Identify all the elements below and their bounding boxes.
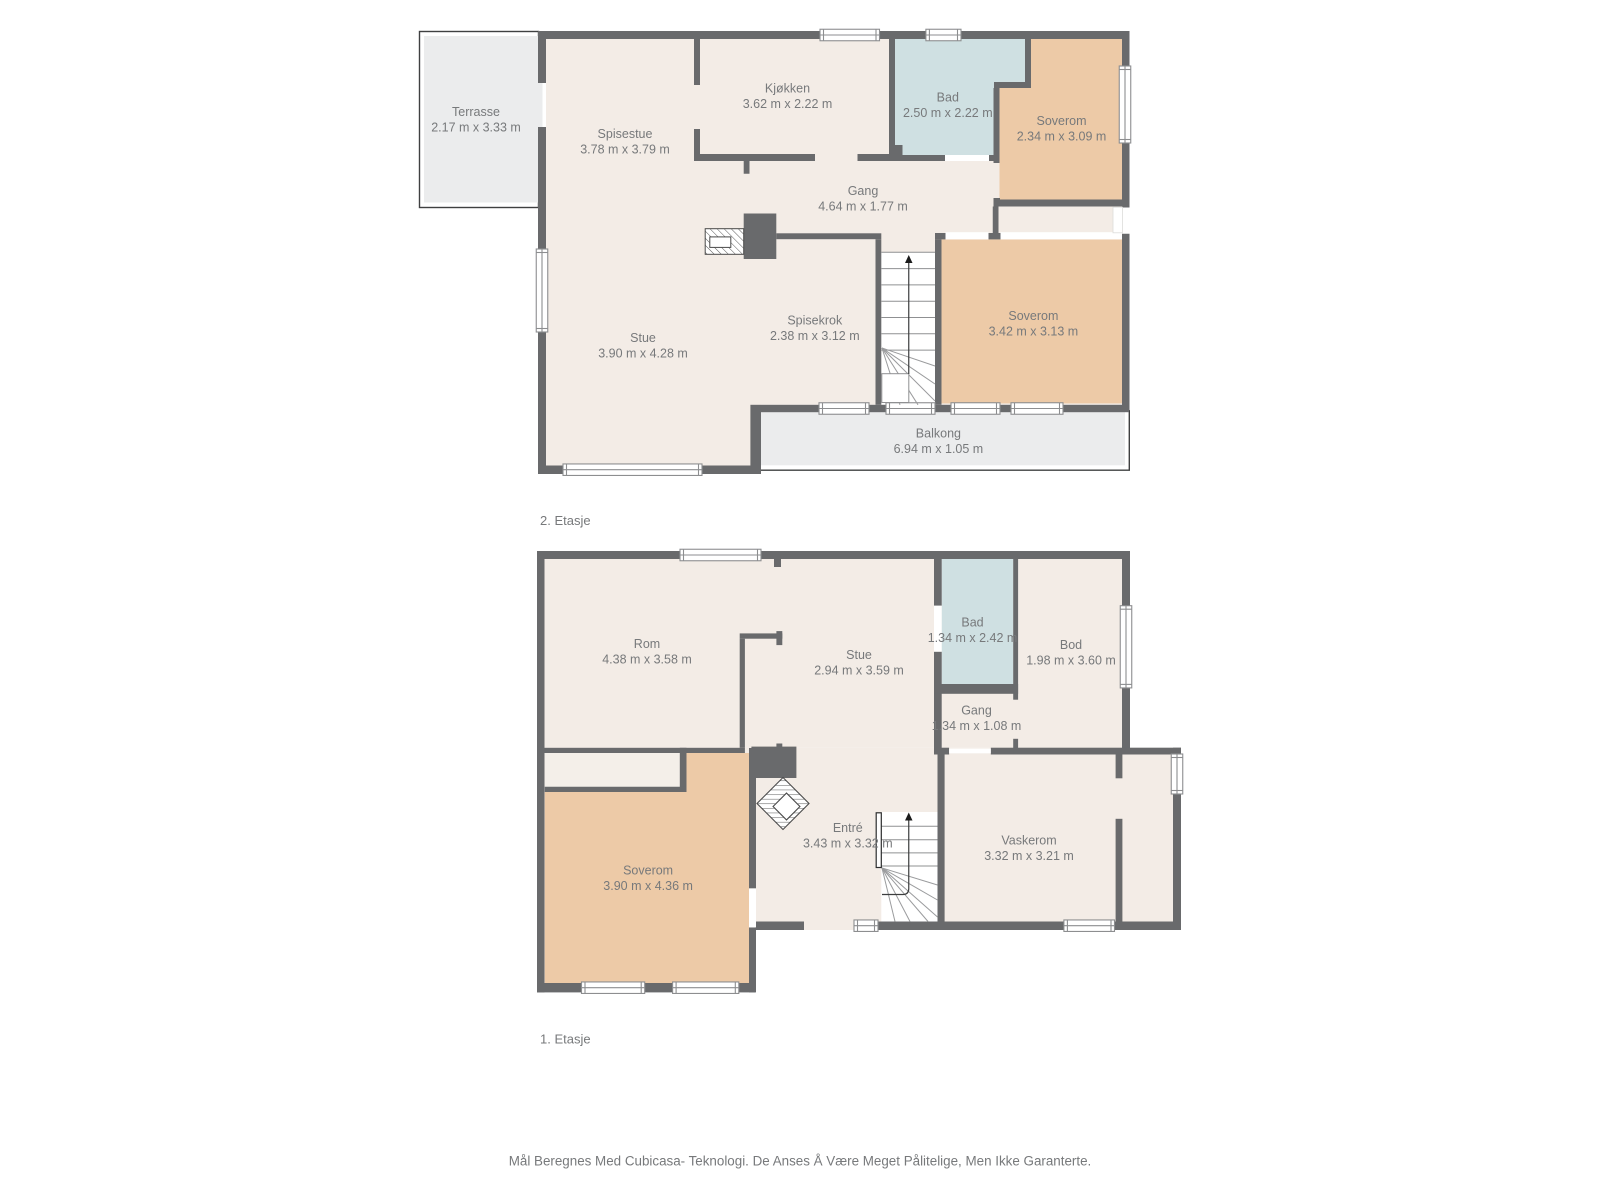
svg-text:Soverom: Soverom	[623, 863, 673, 877]
svg-text:Spisekrok: Spisekrok	[787, 313, 843, 327]
svg-text:3.43 m x 3.32 m: 3.43 m x 3.32 m	[803, 836, 893, 850]
svg-text:Terrasse: Terrasse	[452, 105, 500, 119]
svg-text:1.34 m x 1.08 m: 1.34 m x 1.08 m	[932, 719, 1022, 733]
svg-text:2.34 m x 3.09 m: 2.34 m x 3.09 m	[1017, 129, 1107, 143]
svg-text:3.42 m x 3.13 m: 3.42 m x 3.13 m	[989, 325, 1079, 339]
svg-text:Entré: Entré	[833, 821, 863, 835]
svg-text:2.38 m x 3.12 m: 2.38 m x 3.12 m	[770, 329, 860, 343]
svg-text:1.98 m x 3.60 m: 1.98 m x 3.60 m	[1026, 653, 1116, 667]
svg-text:1.34 m x 2.42 m: 1.34 m x 2.42 m	[928, 631, 1018, 645]
svg-text:Soverom: Soverom	[1008, 309, 1058, 323]
svg-text:Balkong: Balkong	[916, 427, 961, 441]
svg-text:4.38 m x 3.58 m: 4.38 m x 3.58 m	[602, 653, 692, 667]
svg-text:3.78 m x 3.79 m: 3.78 m x 3.79 m	[580, 143, 670, 157]
svg-text:3.90 m x 4.28 m: 3.90 m x 4.28 m	[598, 346, 688, 360]
svg-text:Bad: Bad	[961, 615, 983, 629]
svg-text:2.94 m x 3.59 m: 2.94 m x 3.59 m	[814, 664, 904, 678]
svg-text:1. Etasje: 1. Etasje	[540, 1032, 591, 1047]
svg-text:Stue: Stue	[630, 331, 656, 345]
svg-text:Stue: Stue	[846, 648, 872, 662]
svg-text:3.32 m x 3.21 m: 3.32 m x 3.21 m	[984, 849, 1074, 863]
svg-text:4.64 m x 1.77 m: 4.64 m x 1.77 m	[818, 200, 908, 214]
svg-text:Bod: Bod	[1060, 638, 1082, 652]
svg-text:6.94 m x 1.05 m: 6.94 m x 1.05 m	[894, 442, 984, 456]
svg-text:3.62 m x 2.22 m: 3.62 m x 2.22 m	[743, 97, 833, 111]
svg-text:2.17 m x 3.33 m: 2.17 m x 3.33 m	[431, 121, 521, 135]
svg-text:2.50 m x 2.22 m: 2.50 m x 2.22 m	[903, 106, 993, 120]
svg-text:2. Etasje: 2. Etasje	[540, 513, 591, 528]
svg-text:Kjøkken: Kjøkken	[765, 82, 810, 96]
svg-text:Bad: Bad	[937, 90, 959, 104]
svg-text:3.90 m x 4.36 m: 3.90 m x 4.36 m	[603, 879, 693, 893]
svg-text:Mål Beregnes Med Cubicasa- Tek: Mål Beregnes Med Cubicasa- Teknologi. De…	[509, 1154, 1092, 1169]
svg-text:Vaskerom: Vaskerom	[1001, 834, 1056, 848]
svg-text:Rom: Rom	[634, 637, 660, 651]
svg-text:Gang: Gang	[961, 703, 992, 717]
svg-text:Soverom: Soverom	[1036, 114, 1086, 128]
svg-text:Gang: Gang	[848, 184, 879, 198]
svg-text:Spisestue: Spisestue	[598, 127, 653, 141]
